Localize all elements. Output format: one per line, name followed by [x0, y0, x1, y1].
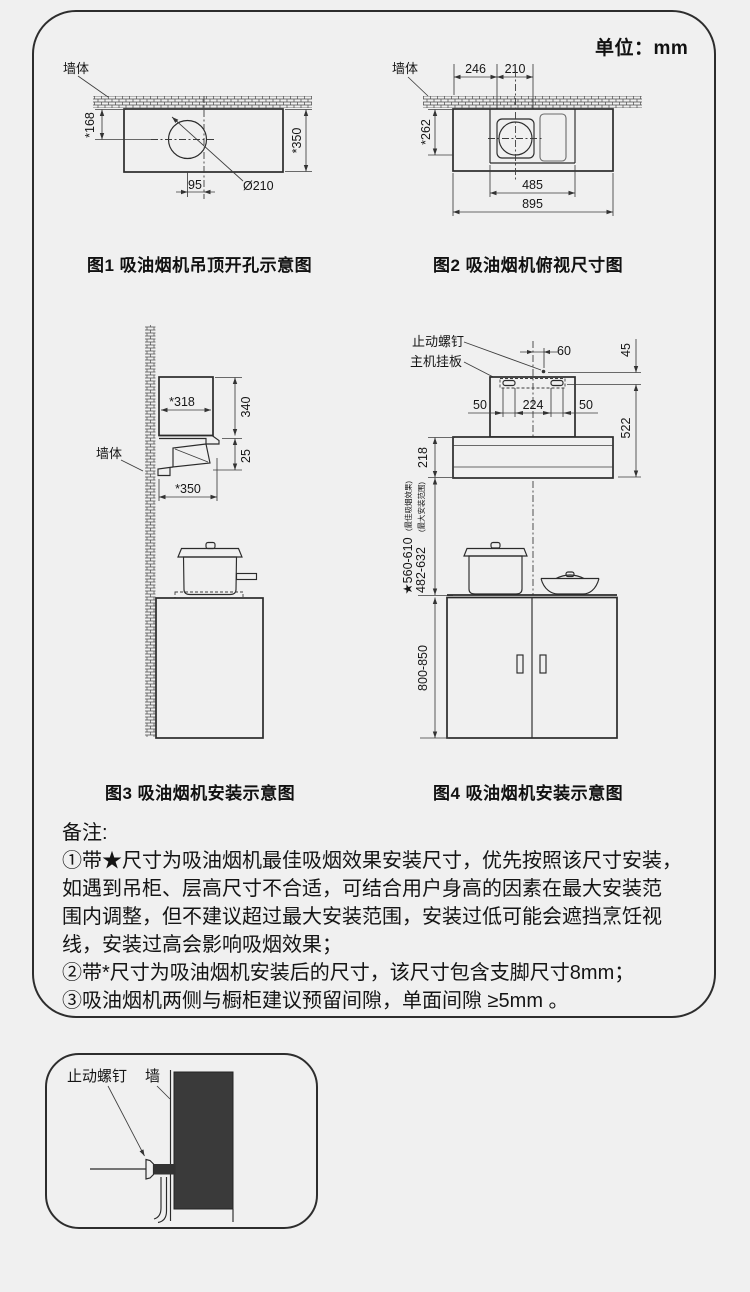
stop-screw-leader [108, 1086, 145, 1156]
dim-60: 60 [520, 344, 571, 368]
notes-line: ③吸油烟机两侧与橱柜建议预留间隙，单面间隙 ≥5mm 。 [62, 987, 722, 1015]
svg-text:50: 50 [579, 398, 593, 412]
figure4-caption: 图4 吸油烟机安装示意图 [433, 779, 623, 804]
dim-218: 218 [416, 438, 455, 478]
wall-hatch-strip [93, 96, 312, 108]
dim-340: 340 [215, 378, 253, 439]
svg-text:246: 246 [465, 62, 486, 76]
dim-350-fig1: *350 [285, 110, 312, 172]
svg-text:(最佳吸烟效果): (最佳吸烟效果) [403, 481, 413, 531]
svg-text:340: 340 [239, 397, 253, 418]
hood-body-front [453, 437, 613, 478]
stop-screw-leader [464, 342, 541, 370]
screw-shank [154, 1164, 176, 1175]
dim-262: *262 [419, 110, 453, 156]
stop-screw [90, 1160, 176, 1180]
wall-leader-line [408, 77, 428, 96]
notes-title: 备注: [62, 819, 722, 847]
stop-screw-point [542, 370, 546, 374]
detail-stop-screw-label: 止动螺钉 [67, 1068, 127, 1085]
pot-handle [237, 574, 257, 580]
wall-leader-line [78, 76, 108, 97]
cabinet [447, 598, 617, 739]
hood-body-top-view [453, 109, 613, 171]
svg-text:*350: *350 [175, 482, 201, 496]
svg-text:522: 522 [619, 418, 633, 439]
svg-text:60: 60 [557, 344, 571, 358]
figure3-wall-label: 墙体 [96, 446, 122, 461]
wall-hatch-strip [423, 96, 642, 108]
figure2-wall-label: 墙体 [392, 61, 418, 76]
svg-text:95: 95 [188, 178, 202, 192]
svg-text:800-850: 800-850 [416, 645, 430, 691]
notes-line: ①带★尺寸为吸油烟机最佳吸烟效果安装尺寸，优先按照该尺寸安装， [62, 847, 722, 875]
hood-canopy [158, 444, 210, 476]
cooking-pot [464, 543, 527, 595]
figure1-ceiling-hole-drawing: 墙体 95 Ø210 *168 *350 [45, 45, 335, 205]
dim-95: 95 [176, 178, 215, 194]
wall-leader-line [121, 460, 143, 471]
svg-text:★560-610: ★560-610 [401, 537, 415, 594]
svg-text:(最大安装范围): (最大安装范围) [416, 482, 426, 532]
detail-wall-label: 墙 [145, 1068, 160, 1085]
figure3-caption: 图3 吸油烟机安装示意图 [105, 779, 295, 804]
notes-line: 围内调整，但不建议超过最大安装范围，安装过低可能会遮挡烹饪视 [62, 903, 722, 931]
notes-line: ②带*尺寸为吸油烟机安装后的尺寸，该尺寸包含支脚尺寸8mm； [62, 959, 722, 987]
svg-text:25: 25 [239, 449, 253, 463]
wok [541, 572, 599, 594]
svg-text:*350: *350 [290, 128, 304, 154]
svg-text:224: 224 [523, 398, 544, 412]
notes-block: 备注: ①带★尺寸为吸油烟机最佳吸烟效果安装尺寸，优先按照该尺寸安装， 如遇到吊… [62, 819, 722, 1015]
svg-text:482-632: 482-632 [414, 547, 428, 593]
svg-text:485: 485 [522, 178, 543, 192]
figure1-wall-label: 墙体 [63, 61, 89, 76]
svg-text:*168: *168 [83, 112, 97, 138]
svg-text:895: 895 [522, 197, 543, 211]
figure3-install-drawing: 墙体 *318 340 25 [85, 318, 320, 753]
figure1-caption: 图1 吸油烟机吊顶开孔示意图 [87, 251, 312, 276]
dim-800-850: 800-850 [416, 598, 449, 739]
wall-hatch-strip [145, 325, 156, 737]
page: 单位：mm 墙体 95 Ø210 [0, 0, 750, 1292]
cabinet-outline [156, 598, 263, 738]
stop-screw-detail-drawing: 止动螺钉 墙 [45, 1053, 318, 1229]
dim-install-range: ★560-610 (最佳吸烟效果) 482-632 (最大安装范围) [401, 478, 453, 596]
figure2-top-view-drawing: 墙体 246 210 *262 [385, 50, 680, 220]
svg-text:45: 45 [619, 343, 633, 357]
cooking-pot [178, 543, 257, 595]
hood-bottom-plate [159, 436, 219, 445]
hood-outline-top-view [124, 109, 283, 172]
svg-text:*318: *318 [169, 395, 195, 409]
svg-text:Ø210: Ø210 [243, 179, 274, 193]
hanging-plate-label: 主机挂板 [410, 354, 462, 369]
wall-section-dark [174, 1072, 233, 1209]
svg-text:210: 210 [505, 62, 526, 76]
dim-350-fig3: *350 [159, 458, 217, 501]
figure4-install-drawing: 止动螺钉 主机挂板 60 45 522 [398, 330, 658, 755]
hanging-hook [154, 1177, 167, 1223]
wall-leader [157, 1086, 170, 1099]
svg-text:50: 50 [473, 398, 487, 412]
notes-line: 线，安装过高会影响吸烟效果； [62, 931, 722, 959]
stop-screw-label: 止动螺钉 [412, 334, 464, 349]
notes-line: 如遇到吊柜、层高尺寸不合适，可结合用户身高的因素在最大安装范 [62, 875, 722, 903]
figure2-caption: 图2 吸油烟机俯视尺寸图 [433, 251, 623, 276]
svg-text:218: 218 [416, 447, 430, 468]
svg-text:*262: *262 [419, 119, 433, 145]
